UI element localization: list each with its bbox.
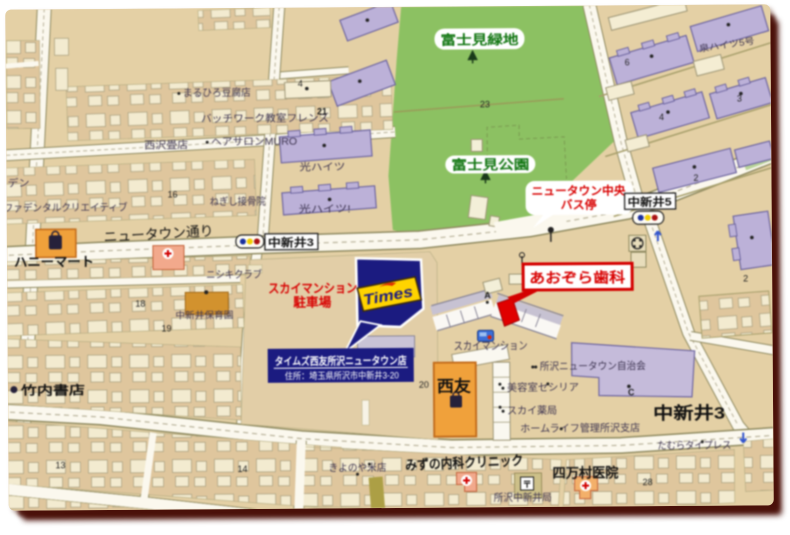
svg-text:中新井保育園: 中新井保育園 <box>175 309 233 320</box>
svg-text:中新井5: 中新井5 <box>628 195 672 209</box>
svg-text:21: 21 <box>317 106 327 116</box>
svg-text:まるひろ豆腐店: まるひろ豆腐店 <box>183 86 251 99</box>
svg-text:竹内書店: 竹内書店 <box>20 382 85 397</box>
svg-text:20: 20 <box>419 380 429 390</box>
svg-text:ファデンタルクリエイティブ: ファデンタルクリエイティブ <box>5 201 127 215</box>
svg-text:スカイマンション: スカイマンション <box>268 281 357 296</box>
svg-text:13: 13 <box>55 460 65 470</box>
svg-text:スカイ薬局: スカイ薬局 <box>507 405 557 417</box>
svg-text:中新井3: 中新井3 <box>653 403 725 424</box>
svg-text:駐車場: 駐車場 <box>293 294 332 309</box>
svg-text:バッチワーク教室フレンズ: バッチワーク教室フレンズ <box>201 111 329 125</box>
svg-text:光ハイツ!: 光ハイツ! <box>299 202 351 215</box>
svg-text:四万村医院: 四万村医院 <box>552 464 619 480</box>
svg-text:あおぞら歯科: あおぞら歯科 <box>529 269 625 286</box>
svg-text:スカイマンション: スカイマンション <box>454 339 528 353</box>
svg-text:住所：埼玉県所沢市中新井3-20: 住所：埼玉県所沢市中新井3-20 <box>285 369 399 381</box>
svg-text:光ハイツ: 光ハイツ <box>299 160 345 173</box>
svg-text:タイムズ西友所沢ニュータウン店: タイムズ西友所沢ニュータウン店 <box>275 354 408 368</box>
svg-text:23: 23 <box>480 99 490 109</box>
svg-text:4: 4 <box>659 112 664 122</box>
svg-text:美容室セシリア: 美容室セシリア <box>507 381 579 395</box>
svg-text:18: 18 <box>135 299 145 309</box>
svg-text:きよのや米店: きよのや米店 <box>328 461 386 474</box>
svg-text:バス停: バス停 <box>561 198 598 212</box>
svg-text:19: 19 <box>161 324 171 334</box>
svg-text:富士見公園: 富士見公園 <box>451 157 529 173</box>
svg-text:所沢中新井局: 所沢中新井局 <box>494 491 552 504</box>
svg-text:ねぎし接骨院: ねぎし接骨院 <box>210 195 266 208</box>
svg-text:A: A <box>484 290 491 300</box>
svg-text:デン: デン <box>7 177 29 190</box>
svg-text:2: 2 <box>693 173 698 183</box>
svg-text:たむらタイプレス: たむらタイプレス <box>657 440 731 453</box>
svg-text:4: 4 <box>298 79 303 89</box>
svg-text:中新井3: 中新井3 <box>268 235 314 249</box>
svg-text:ニシキクラブ: ニシキクラブ <box>206 268 262 281</box>
svg-text:6: 6 <box>625 57 630 67</box>
svg-text:ニュータウン中央: ニュータウン中央 <box>531 183 626 198</box>
svg-text:西友: 西友 <box>437 376 472 395</box>
svg-text:西沢畳店: 西沢畳店 <box>144 138 188 151</box>
svg-text:16: 16 <box>168 189 178 199</box>
svg-text:2: 2 <box>743 273 748 283</box>
svg-text:ハニーマート: ハニーマート <box>14 254 94 270</box>
svg-text:所沢ニュータウン自治会: 所沢ニュータウン自治会 <box>540 359 646 373</box>
svg-text:14: 14 <box>237 464 247 474</box>
svg-text:ヘアサロンMURO: ヘアサロンMURO <box>211 136 297 149</box>
svg-text:富士見緑地: 富士見緑地 <box>440 32 518 48</box>
svg-text:28: 28 <box>643 477 653 487</box>
svg-text:ホームライフ管理所沢支店: ホームライフ管理所沢支店 <box>520 421 640 435</box>
svg-text:〒: 〒 <box>523 480 532 490</box>
svg-text:C: C <box>628 387 635 397</box>
